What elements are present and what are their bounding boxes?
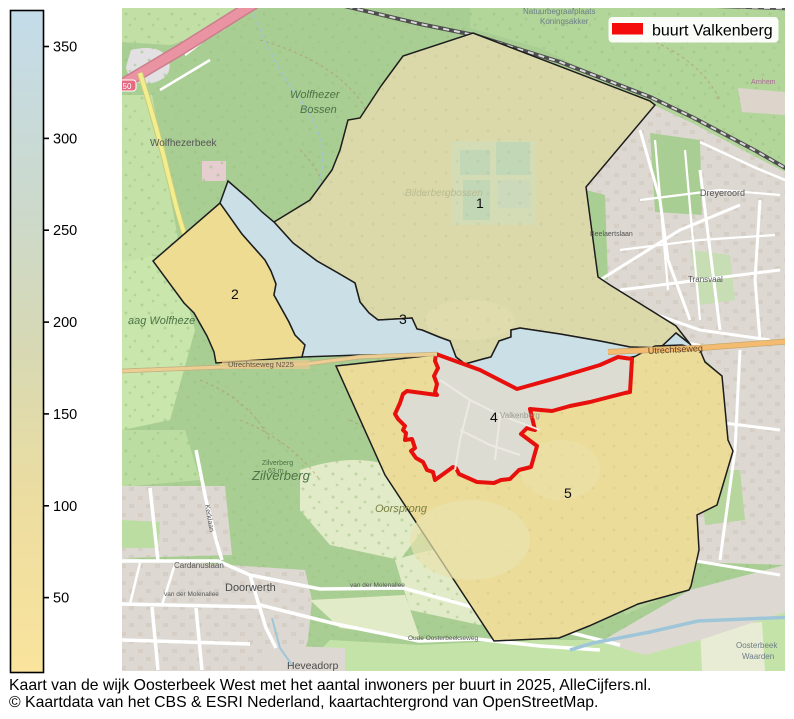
svg-text:Doorwerth: Doorwerth [225,582,276,594]
svg-text:100: 100 [53,499,77,515]
svg-text:Valkenberg: Valkenberg [500,411,540,420]
svg-text:buurt Valkenberg: buurt Valkenberg [652,23,773,40]
svg-text:Oosterbeek: Oosterbeek [736,641,778,650]
svg-text:Cardanuslaan: Cardanuslaan [174,561,224,570]
svg-text:Koningsakker: Koningsakker [540,17,589,26]
svg-text:5: 5 [564,485,572,501]
svg-text:150: 150 [53,407,77,423]
svg-text:aag Wolfheze: aag Wolfheze [128,315,195,327]
svg-text:Utrechtseweg N225: Utrechtseweg N225 [228,360,294,369]
svg-text:Heveadorp: Heveadorp [287,660,339,672]
svg-text:63 m: 63 m [268,468,284,475]
svg-text:Arnhem: Arnhem [751,79,776,86]
svg-text:4: 4 [490,409,498,425]
svg-text:Wolfhezerbeek: Wolfhezerbeek [150,138,218,149]
svg-text:van der Molenallee: van der Molenallee [164,591,219,598]
svg-text:50: 50 [53,591,69,607]
svg-text:Beelaertslaan: Beelaertslaan [590,231,633,238]
svg-text:Oude Oosterbeekseweg: Oude Oosterbeekseweg [408,635,478,642]
svg-text:Zilverberg: Zilverberg [262,460,293,467]
svg-text:Kaart van de wijk Oosterbeek W: Kaart van de wijk Oosterbeek West met he… [9,677,651,694]
svg-text:Dreyeroord: Dreyeroord [700,188,745,198]
svg-text:van der Molenallee: van der Molenallee [350,582,405,589]
svg-text:3: 3 [399,311,407,327]
svg-text:© Kaartdata van het CBS & ESRI: © Kaartdata van het CBS & ESRI Nederland… [9,694,598,711]
svg-text:Transvaal: Transvaal [688,275,723,284]
svg-text:200: 200 [53,315,77,331]
svg-text:350: 350 [53,40,77,56]
svg-text:2: 2 [231,286,239,302]
svg-text:Natuurbegraafplaats: Natuurbegraafplaats [523,7,596,16]
svg-text:250: 250 [53,223,77,239]
svg-text:Oorsprong: Oorsprong [375,503,428,515]
svg-text:Bossen: Bossen [300,104,337,116]
svg-text:300: 300 [53,131,77,147]
svg-text:Wolfhezer: Wolfhezer [290,89,341,101]
svg-text:Waarden: Waarden [742,652,774,661]
svg-text:50: 50 [123,82,132,91]
svg-text:1: 1 [476,195,484,211]
